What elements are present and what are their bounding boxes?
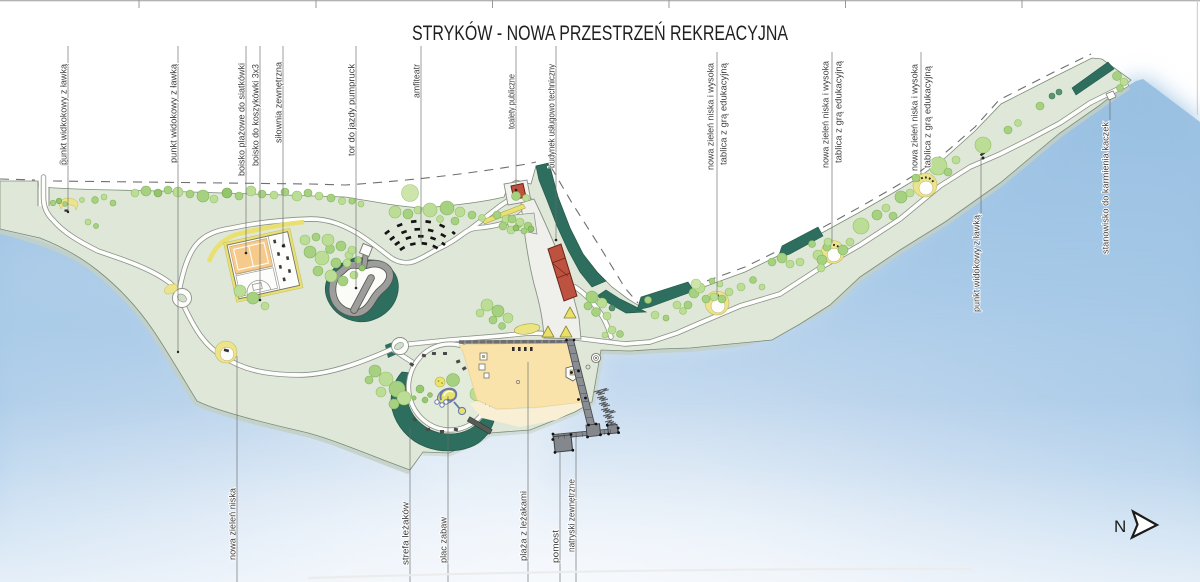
svg-text:plac zabaw: plac zabaw <box>438 517 449 563</box>
svg-text:natryski zewnętrzne: natryski zewnętrzne <box>566 479 577 552</box>
svg-text:tablica z grą edukacyjną: tablica z grą edukacyjną <box>718 62 729 165</box>
svg-text:plaża z leżakami: plaża z leżakami <box>518 491 529 561</box>
svg-text:tablica z grą edukacyjną: tablica z grą edukacyjną <box>922 65 933 168</box>
svg-text:tor do jazdy pumpruck: tor do jazdy pumpruck <box>346 64 357 156</box>
svg-text:nowa zieleń niska: nowa zieleń niska <box>227 487 238 560</box>
svg-text:N: N <box>1114 517 1126 536</box>
svg-text:punkt widokowy z ławką: punkt widokowy z ławką <box>168 63 179 163</box>
svg-text:punkt widokowy z ławką: punkt widokowy z ławką <box>971 214 982 312</box>
svg-text:STRYKÓW - NOWA PRZESTRZEŃ REKR: STRYKÓW - NOWA PRZESTRZEŃ REKREACYJNA <box>412 20 788 45</box>
svg-text:punkt widkokowy z ławką: punkt widkokowy z ławką <box>58 63 69 165</box>
svg-text:siłownia zewnętrzna: siłownia zewnętrzna <box>273 61 284 143</box>
svg-text:boisko do koszykówki 3x3: boisko do koszykówki 3x3 <box>250 64 261 166</box>
svg-text:nowa zieleń niska i wysoka: nowa zieleń niska i wysoka <box>820 60 831 168</box>
svg-text:toalety publiczne: toalety publiczne <box>506 74 517 129</box>
svg-text:budynek usługowo techniczny: budynek usługowo techniczny <box>546 64 557 168</box>
svg-text:tablica z grą edukacyjną: tablica z grą edukacyjną <box>833 60 844 163</box>
svg-text:nowa zieleń niska i wysoka: nowa zieleń niska i wysoka <box>705 62 716 170</box>
svg-text:boisko plażowe do siatkówki: boisko plażowe do siatkówki <box>236 63 247 176</box>
svg-text:pomost: pomost <box>550 530 561 563</box>
svg-text:strefa leżaków: strefa leżaków <box>400 502 411 565</box>
svg-text:stanowisko do karmienia kaczek: stanowisko do karmienia kaczek <box>1100 122 1111 254</box>
svg-text:nowa zieleń niska i wysoka: nowa zieleń niska i wysoka <box>909 63 920 171</box>
svg-text:amfiteatr: amfiteatr <box>411 64 422 98</box>
